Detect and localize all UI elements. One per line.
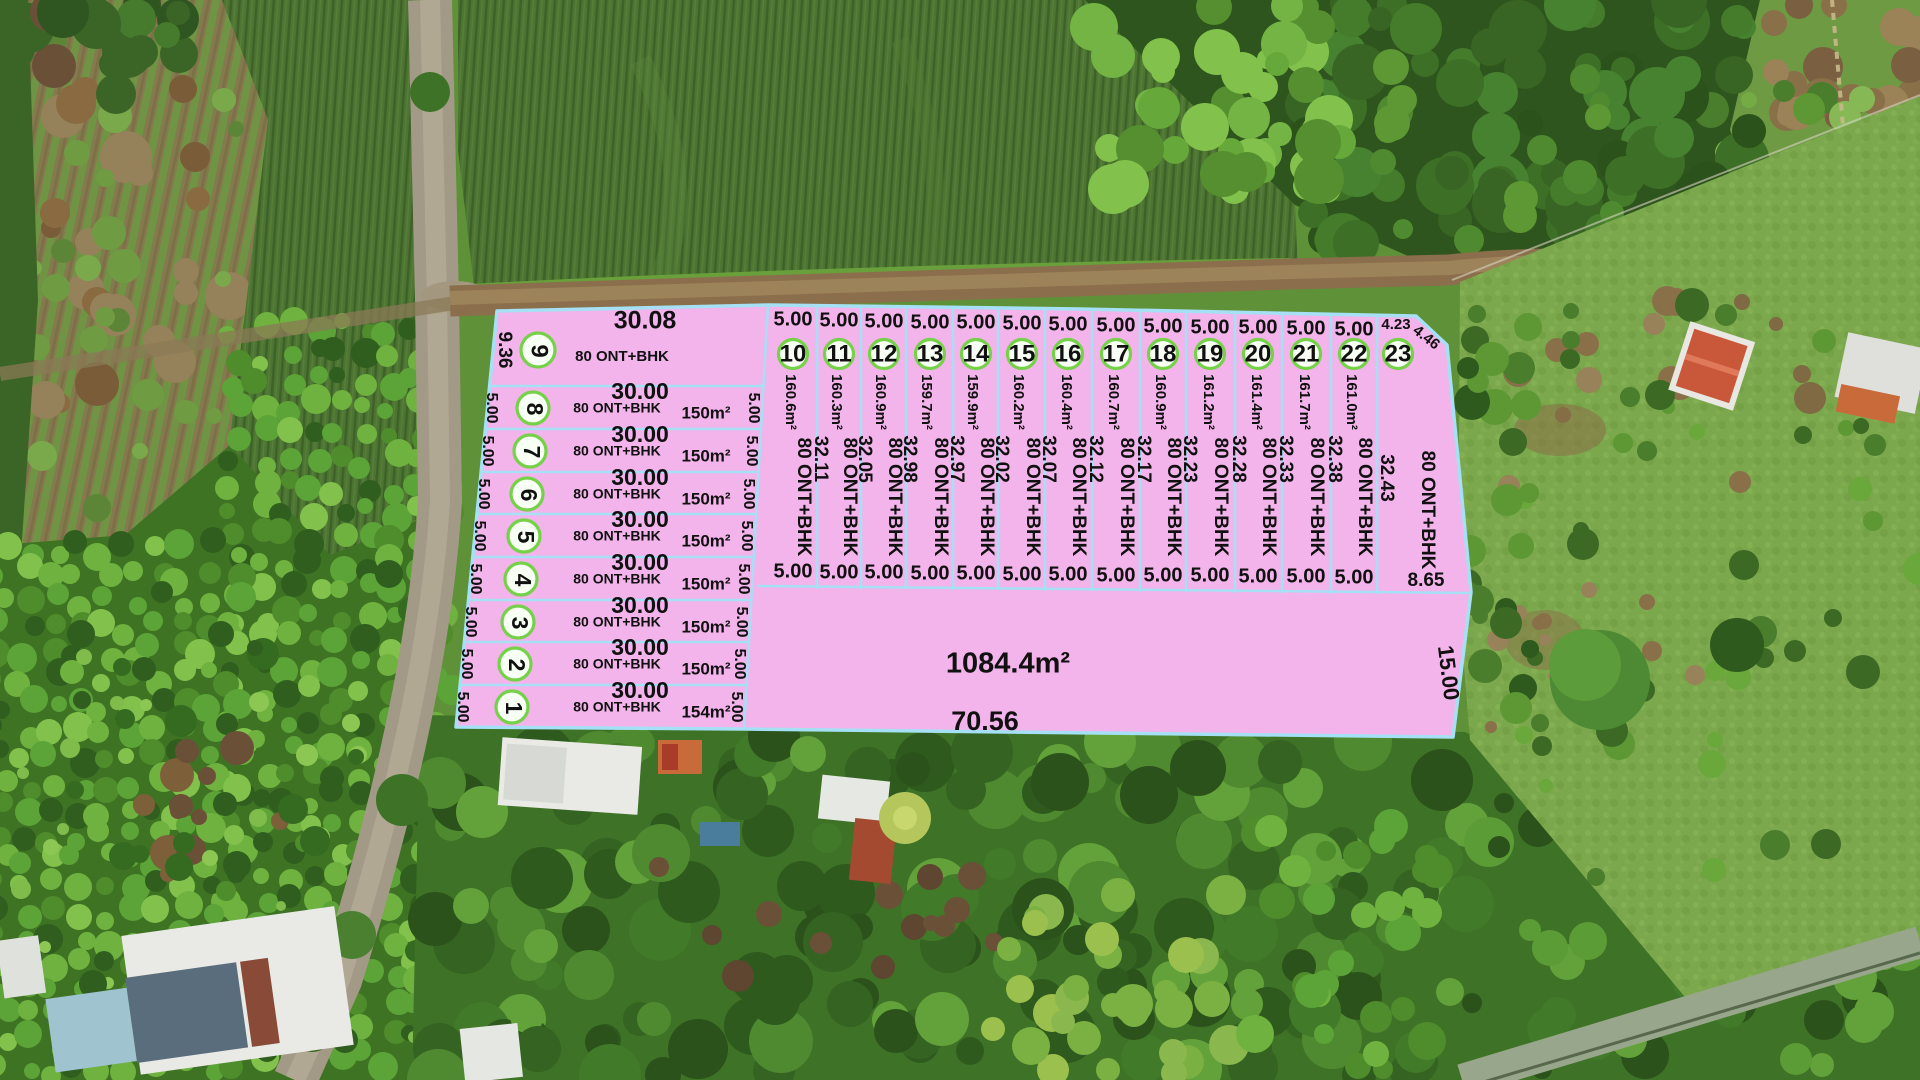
svg-text:5.00: 5.00: [1003, 563, 1042, 585]
svg-text:5.00: 5.00: [1144, 564, 1183, 586]
svg-text:1084.4m²: 1084.4m²: [946, 648, 1070, 680]
svg-text:32.43: 32.43: [1376, 454, 1397, 502]
svg-text:15: 15: [1009, 340, 1036, 367]
svg-text:80 ONT+BHK: 80 ONT+BHK: [573, 486, 661, 502]
svg-text:22: 22: [1341, 340, 1368, 367]
svg-text:14: 14: [963, 340, 990, 367]
svg-text:32.28: 32.28: [1228, 435, 1249, 483]
svg-text:150m²: 150m²: [681, 659, 730, 678]
svg-text:9: 9: [526, 344, 553, 357]
svg-text:5.00: 5.00: [774, 308, 813, 330]
svg-text:5.00: 5.00: [1097, 564, 1136, 586]
svg-text:161.4m²: 161.4m²: [1248, 374, 1265, 430]
svg-text:5.00: 5.00: [1049, 313, 1088, 335]
svg-text:32.07: 32.07: [1038, 435, 1059, 483]
svg-text:30.08: 30.08: [614, 307, 677, 335]
svg-text:21: 21: [1293, 340, 1320, 367]
svg-text:5.00: 5.00: [745, 392, 762, 423]
svg-text:160.9m²: 160.9m²: [872, 374, 889, 430]
svg-text:160.2m²: 160.2m²: [1010, 374, 1027, 430]
svg-text:5.00: 5.00: [957, 562, 996, 584]
svg-text:160.7m²: 160.7m²: [1105, 374, 1122, 430]
svg-text:5.00: 5.00: [1097, 314, 1136, 336]
svg-text:5.00: 5.00: [454, 691, 471, 722]
svg-text:150m²: 150m²: [681, 617, 730, 636]
svg-text:70.56: 70.56: [951, 706, 1019, 736]
svg-text:80 ONT+BHK: 80 ONT+BHK: [1306, 438, 1327, 557]
svg-text:32.17: 32.17: [1133, 435, 1154, 483]
svg-text:159.7m²: 159.7m²: [918, 374, 935, 430]
svg-text:5.00: 5.00: [471, 520, 488, 551]
svg-text:5.00: 5.00: [774, 560, 813, 582]
svg-text:8: 8: [522, 403, 548, 416]
svg-text:80 ONT+BHK: 80 ONT+BHK: [573, 528, 661, 544]
svg-text:4: 4: [510, 574, 536, 587]
svg-text:160.3m²: 160.3m²: [828, 374, 845, 430]
svg-text:80 ONT+BHK: 80 ONT+BHK: [573, 614, 661, 630]
svg-text:32.11: 32.11: [810, 436, 831, 483]
svg-text:80 ONT+BHK: 80 ONT+BHK: [1354, 438, 1375, 557]
svg-text:160.4m²: 160.4m²: [1058, 374, 1075, 430]
svg-text:159.9m²: 159.9m²: [964, 374, 981, 430]
svg-text:5.00: 5.00: [1335, 566, 1374, 588]
svg-text:5.00: 5.00: [728, 691, 745, 722]
svg-text:5.00: 5.00: [1287, 565, 1326, 587]
svg-text:5.00: 5.00: [820, 309, 859, 331]
svg-text:80 ONT+BHK: 80 ONT+BHK: [1210, 438, 1231, 557]
svg-text:32.98: 32.98: [899, 435, 920, 483]
svg-text:5.00: 5.00: [462, 606, 479, 637]
svg-text:5.00: 5.00: [1144, 315, 1183, 337]
svg-text:8.65: 8.65: [1408, 570, 1445, 591]
svg-text:150m²: 150m²: [681, 531, 730, 550]
svg-text:161.2m²: 161.2m²: [1200, 374, 1217, 430]
svg-text:5.00: 5.00: [733, 606, 750, 637]
svg-text:3: 3: [507, 617, 533, 630]
svg-text:12: 12: [871, 340, 898, 367]
svg-text:150m²: 150m²: [681, 403, 730, 422]
svg-text:32.23: 32.23: [1179, 435, 1200, 483]
svg-text:150m²: 150m²: [681, 574, 730, 593]
svg-text:16: 16: [1055, 340, 1082, 367]
svg-text:5.00: 5.00: [957, 311, 996, 333]
svg-text:5.00: 5.00: [865, 561, 904, 583]
svg-text:80 ONT+BHK: 80 ONT+BHK: [1417, 451, 1438, 570]
svg-text:18: 18: [1150, 340, 1177, 367]
svg-text:5.00: 5.00: [735, 563, 752, 594]
svg-text:5.00: 5.00: [1239, 565, 1278, 587]
svg-text:5.00: 5.00: [1239, 316, 1278, 338]
svg-text:5.00: 5.00: [1003, 312, 1042, 334]
svg-text:150m²: 150m²: [681, 446, 730, 465]
svg-text:5.00: 5.00: [1335, 318, 1374, 340]
svg-text:32.38: 32.38: [1324, 435, 1345, 483]
svg-text:5.00: 5.00: [1191, 564, 1230, 586]
svg-text:5.00: 5.00: [467, 563, 484, 594]
svg-text:20: 20: [1245, 340, 1272, 367]
svg-text:13: 13: [917, 340, 944, 367]
svg-text:1: 1: [501, 702, 527, 715]
svg-text:161.0m²: 161.0m²: [1343, 374, 1360, 430]
svg-text:80 ONT+BHK: 80 ONT+BHK: [573, 443, 661, 459]
svg-text:5: 5: [513, 531, 539, 544]
svg-text:19: 19: [1197, 340, 1224, 367]
svg-text:80 ONT+BHK: 80 ONT+BHK: [573, 571, 661, 587]
svg-text:5.00: 5.00: [1049, 563, 1088, 585]
svg-text:160.6m²: 160.6m²: [782, 374, 799, 430]
svg-text:5.00: 5.00: [740, 478, 757, 509]
svg-text:5.00: 5.00: [1287, 317, 1326, 339]
svg-text:160.9m²: 160.9m²: [1152, 374, 1169, 430]
svg-text:5.00: 5.00: [738, 520, 755, 551]
svg-text:80 ONT+BHK: 80 ONT+BHK: [573, 699, 661, 715]
svg-text:32.12: 32.12: [1085, 435, 1106, 483]
svg-text:154m²: 154m²: [681, 702, 730, 721]
svg-text:5.00: 5.00: [475, 478, 492, 509]
svg-text:161.7m²: 161.7m²: [1296, 374, 1313, 430]
svg-text:17: 17: [1103, 340, 1130, 367]
svg-text:150m²: 150m²: [681, 489, 730, 508]
svg-text:80 ONT+BHK: 80 ONT+BHK: [573, 400, 661, 416]
svg-text:5.00: 5.00: [743, 435, 760, 466]
svg-text:5.00: 5.00: [731, 648, 748, 679]
svg-text:6: 6: [516, 489, 542, 502]
svg-text:7: 7: [519, 446, 545, 459]
svg-text:9.36: 9.36: [494, 332, 515, 369]
svg-text:5.00: 5.00: [911, 311, 950, 333]
svg-text:4.23: 4.23: [1381, 316, 1410, 333]
svg-text:80 ONT+BHK: 80 ONT+BHK: [573, 656, 661, 672]
svg-text:80 ONT+BHK: 80 ONT+BHK: [575, 348, 669, 365]
svg-text:5.00: 5.00: [479, 435, 496, 466]
svg-text:32.97: 32.97: [946, 435, 967, 483]
svg-text:32.02: 32.02: [991, 435, 1012, 483]
svg-text:5.00: 5.00: [865, 310, 904, 332]
svg-text:5.00: 5.00: [458, 648, 475, 679]
svg-text:23: 23: [1385, 340, 1412, 367]
svg-text:5.00: 5.00: [820, 561, 859, 583]
svg-text:32.33: 32.33: [1275, 435, 1296, 483]
svg-text:5.00: 5.00: [911, 562, 950, 584]
svg-text:11: 11: [826, 340, 851, 367]
svg-text:32.05: 32.05: [854, 435, 875, 483]
svg-text:2: 2: [504, 659, 530, 672]
svg-text:5.00: 5.00: [1191, 316, 1230, 338]
svg-text:10: 10: [780, 340, 807, 367]
svg-text:5.00: 5.00: [483, 392, 500, 423]
